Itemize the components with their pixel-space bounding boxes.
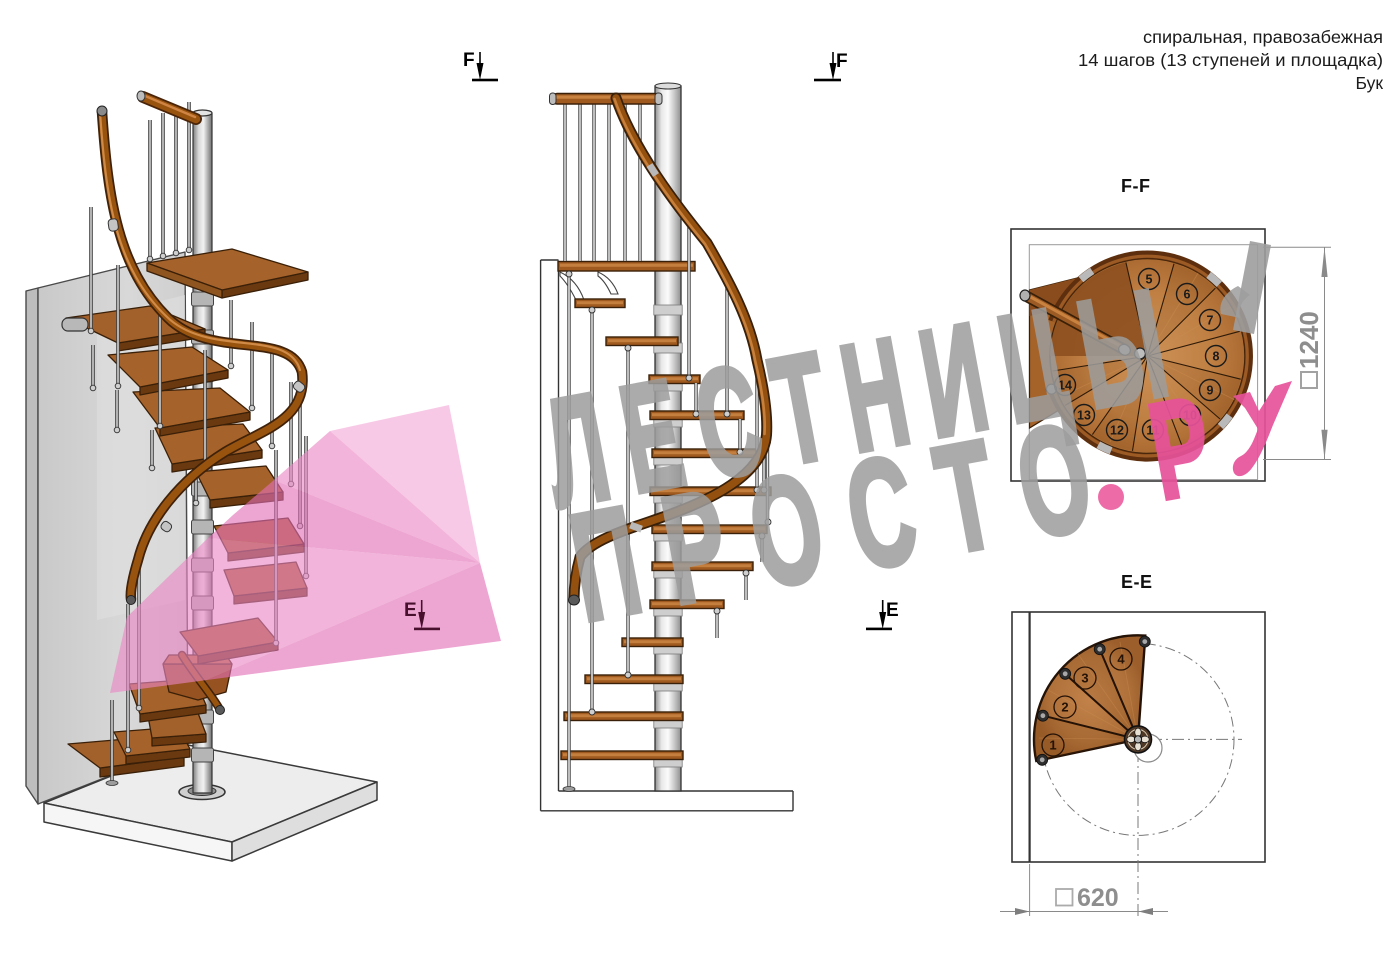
svg-text:8: 8: [1213, 350, 1220, 364]
svg-text:9: 9: [1207, 384, 1214, 398]
svg-text:2: 2: [1061, 700, 1068, 715]
svg-text:3: 3: [1081, 671, 1088, 686]
svg-text:6: 6: [1184, 288, 1191, 302]
svg-text:E: E: [404, 600, 417, 621]
svg-text:4: 4: [1117, 652, 1125, 667]
svg-text:Бук: Бук: [1355, 73, 1383, 93]
svg-text:спиральная, правозабежная: спиральная, правозабежная: [1143, 27, 1383, 47]
svg-text:E-E: E-E: [1121, 572, 1153, 592]
svg-text:1: 1: [1049, 738, 1056, 753]
svg-text:7: 7: [1207, 314, 1214, 328]
svg-text:14 шагов (13 ступеней и площад: 14 шагов (13 ступеней и площадка): [1078, 50, 1383, 70]
svg-text:F: F: [463, 50, 475, 71]
svg-text:F: F: [836, 51, 848, 72]
svg-text:F-F: F-F: [1121, 176, 1150, 196]
svg-text:620: 620: [1077, 884, 1119, 912]
svg-text:E: E: [886, 600, 899, 621]
svg-text:1240: 1240: [1294, 311, 1324, 369]
